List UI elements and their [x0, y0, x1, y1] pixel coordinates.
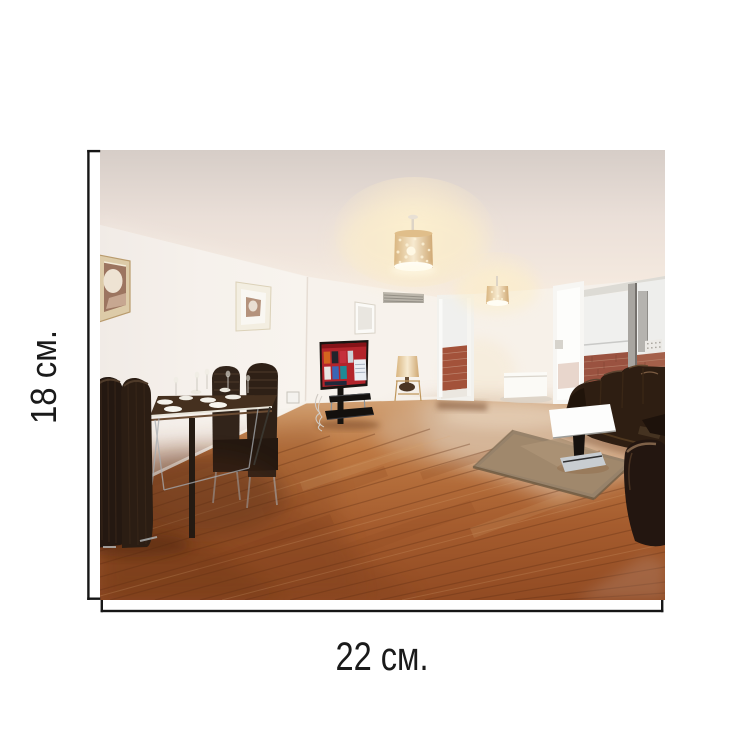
- svg-text:18 см.: 18 см.: [23, 330, 64, 424]
- svg-text:22 см.: 22 см.: [336, 635, 429, 679]
